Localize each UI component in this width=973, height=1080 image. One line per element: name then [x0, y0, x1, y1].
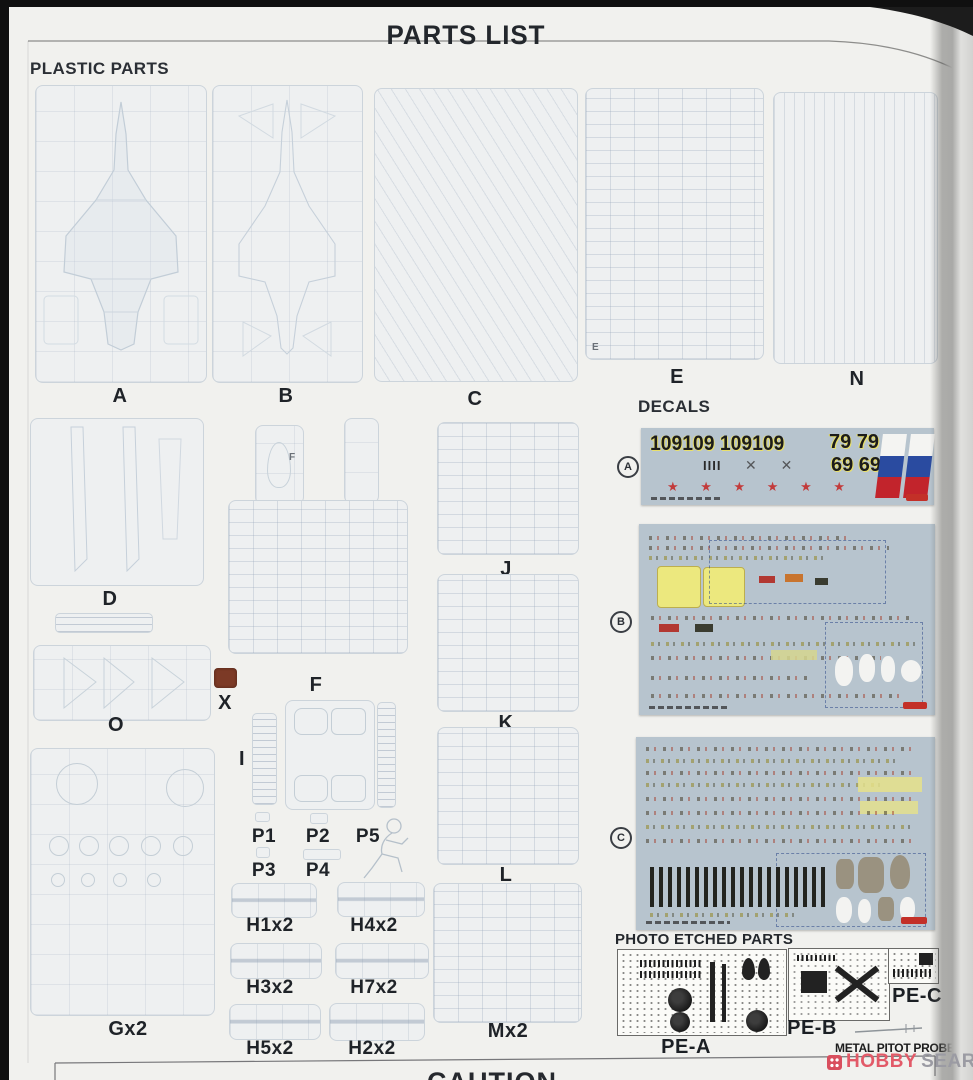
- sprue-k-drawing: [437, 574, 579, 712]
- sprue-l-drawing: [437, 727, 579, 865]
- photo-corner-curl: [0, 0, 973, 90]
- russian-flag-decal: [903, 434, 935, 498]
- sprue-h5-label: H5x2: [246, 1038, 293, 1060]
- decal-sheet-b-marker: B: [610, 611, 632, 633]
- watermark-hobby: HOBBY: [846, 1051, 917, 1073]
- tan-decal: [878, 897, 894, 921]
- sprue-d2-drawing: [55, 613, 153, 633]
- white-decal: [835, 656, 853, 686]
- pe-intake-part: [742, 958, 755, 980]
- stencil-row: [651, 616, 911, 620]
- part-p1-thumb: [255, 812, 270, 822]
- part-p3-thumb: [256, 847, 270, 858]
- sprue-g-drawing: [30, 748, 215, 1016]
- decal-sheet-c: [636, 737, 935, 930]
- pe-comb-strip: [893, 969, 933, 977]
- decal-sheet-a: 109109 109109 79 79 69 69 IIII ✕ ✕ ★ ★ ★…: [641, 428, 934, 505]
- pe-c-label: PE-C: [892, 985, 942, 1008]
- seat-part: [294, 708, 328, 735]
- stencil-row: [646, 759, 901, 763]
- part-x-vinyl: [214, 668, 237, 688]
- g-disc: [49, 836, 69, 856]
- sprue-c-drawing: [374, 88, 578, 382]
- stencil-row: [646, 811, 896, 815]
- decal-sheet-a-marker: A: [617, 456, 639, 478]
- g-disc: [141, 836, 161, 856]
- sprue-o-drawing: [33, 645, 211, 721]
- sprue-h2-label: H2x2: [348, 1038, 395, 1060]
- stencil-row: [646, 825, 914, 829]
- pe-bracket-part: [919, 953, 933, 965]
- white-decal: [859, 654, 875, 682]
- g-disc: [109, 836, 129, 856]
- sprue-f-inner-mark: F: [289, 452, 295, 463]
- g-disc-small: [81, 873, 95, 887]
- sprue-p2-label: P2: [306, 826, 330, 848]
- sprue-n-drawing: [773, 92, 938, 364]
- decal-maker-logo: [901, 917, 927, 924]
- white-decal: [901, 660, 921, 682]
- pe-c-fret: [888, 948, 939, 984]
- sprue-i-label: I: [239, 748, 245, 771]
- tan-decal: [836, 859, 854, 889]
- sprue-f-drawing: [228, 500, 408, 654]
- sprue-m-drawing: [433, 883, 582, 1023]
- sprue-h7-drawing: [335, 943, 429, 979]
- pe-strip-part: [722, 964, 726, 1022]
- pe-ring: [668, 988, 692, 1012]
- decal-sheet-c-marker: C: [610, 827, 632, 849]
- pe-plate-part: [801, 971, 827, 993]
- sprue-p-strip: [377, 702, 396, 808]
- g-disc-small: [51, 873, 65, 887]
- sprue-h3-drawing: [230, 943, 322, 979]
- sprue-p1-label: P1: [252, 826, 276, 848]
- sprue-p-seats-drawing: [285, 700, 375, 810]
- pe-ring: [746, 1010, 768, 1032]
- sprue-p4-label: P4: [306, 860, 330, 882]
- walkway-stripe-decals: [650, 867, 828, 907]
- stencil-row: [646, 783, 886, 787]
- orange-stencil: [785, 574, 803, 582]
- dark-stencil: [695, 624, 713, 632]
- sprue-h5-drawing: [229, 1004, 321, 1040]
- sprue-d-parts: [31, 419, 203, 585]
- sprue-c-label: C: [468, 388, 483, 411]
- sprue-a-jet-outline: [36, 86, 206, 382]
- pe-a-fret: [617, 949, 787, 1036]
- sprue-i-drawing: [252, 713, 277, 805]
- decal-cross-marks: ✕ ✕: [745, 457, 802, 474]
- seat-part: [331, 775, 366, 802]
- sprue-p5-label: P5: [356, 826, 380, 848]
- russian-flag-decal: [875, 434, 907, 498]
- photo-edge-left: [0, 0, 9, 1080]
- pe-strip-part: [710, 962, 715, 1022]
- seat-part: [294, 775, 328, 802]
- g-disc-small: [113, 873, 127, 887]
- sprue-h3-label: H3x2: [246, 977, 293, 999]
- g-disc: [79, 836, 99, 856]
- scanned-instruction-page: PARTS LIST PLASTIC PARTS A B C E E N: [0, 0, 973, 1080]
- decal-numbers-large: 109109 109109: [650, 432, 784, 456]
- part-p2-thumb: [310, 813, 328, 824]
- g-disc-small: [147, 873, 161, 887]
- sprue-f-stub2: [344, 418, 379, 504]
- pe-comb-strip: [640, 960, 702, 967]
- sprue-p3-label: P3: [252, 860, 276, 882]
- stencil-row: [651, 694, 901, 698]
- stencil-row: [646, 771, 916, 775]
- tan-decal: [890, 855, 910, 889]
- hobby-search-watermark: HOBBY SEARCH: [827, 1051, 973, 1073]
- decal-sheet-b-marker-letter: B: [617, 616, 625, 628]
- decal-footer-text: [651, 497, 723, 500]
- stencil-group-outline: [709, 540, 886, 604]
- sprue-a-drawing: [35, 85, 207, 383]
- sprue-h4-label: H4x2: [350, 915, 397, 937]
- stencil-row: [646, 747, 916, 751]
- photo-etched-heading: PHOTO ETCHED PARTS: [615, 931, 793, 948]
- white-decal: [881, 656, 895, 682]
- caution-heading: CAUTION: [427, 1067, 557, 1080]
- sprue-e-inner-mark: E: [592, 342, 599, 353]
- tan-decal: [858, 857, 884, 893]
- stencil-row: [651, 676, 811, 680]
- yellow-stencil-grid: [858, 777, 922, 792]
- paper-page: PARTS LIST PLASTIC PARTS A B C E E N: [9, 6, 973, 1080]
- red-stencil: [659, 624, 679, 632]
- dark-stencil: [815, 578, 828, 585]
- decal-sheet-a-marker-letter: A: [624, 461, 632, 473]
- sprue-g-label: Gx2: [108, 1018, 147, 1041]
- sprue-n-label: N: [850, 368, 865, 391]
- g-wheel: [166, 769, 204, 807]
- decal-footer-text: [649, 706, 729, 709]
- part-x-label: X: [218, 692, 232, 715]
- yellow-canopy-decal: [657, 566, 701, 608]
- decal-sheet-b: [639, 524, 935, 715]
- decal-maker-logo: [906, 494, 928, 501]
- sprue-a-label: A: [113, 385, 128, 408]
- g-disc: [173, 836, 193, 856]
- decals-heading: DECALS: [638, 397, 710, 417]
- sprue-d-drawing: [30, 418, 204, 586]
- pe-ring: [670, 1012, 690, 1032]
- sprue-h7-label: H7x2: [350, 977, 397, 999]
- decal-sheet-c-marker-letter: C: [617, 832, 625, 844]
- sprue-j-drawing: [437, 422, 579, 555]
- sprue-m-label: Mx2: [488, 1020, 528, 1043]
- g-wheel: [56, 763, 98, 805]
- pe-intake-part: [758, 958, 770, 980]
- decal-maker-logo: [903, 702, 927, 709]
- sprue-h2-drawing: [329, 1003, 425, 1041]
- pe-comb-strip: [640, 971, 702, 978]
- yellow-stencil: [771, 650, 817, 660]
- sprue-e-label: E: [670, 366, 684, 389]
- decal-numbers-79: 79 79: [829, 431, 879, 454]
- sprue-f-label: F: [310, 674, 323, 697]
- part-p4-thumb: [303, 849, 341, 860]
- seat-part: [331, 708, 366, 735]
- decal-numbers-69: 69 69: [831, 454, 881, 477]
- decal-stars: ★ ★ ★ ★ ★ ★: [667, 479, 854, 495]
- pe-a-label: PE-A: [661, 1036, 711, 1059]
- pe-b-label: PE-B: [787, 1017, 837, 1040]
- red-stencil: [759, 576, 775, 583]
- sprue-o-label: O: [108, 714, 124, 737]
- white-decal: [836, 897, 852, 923]
- sprue-h4-drawing: [337, 882, 425, 917]
- pe-comb-strip: [797, 955, 837, 961]
- sprue-h1-drawing: [231, 883, 317, 918]
- stencil-row: [650, 913, 800, 917]
- sprue-f-teardrop: [267, 442, 291, 488]
- hobby-search-icon: [827, 1055, 842, 1070]
- decal-tally-marks: IIII: [703, 458, 721, 473]
- sprue-b-label: B: [279, 385, 294, 408]
- sprue-o-parts: [34, 646, 210, 720]
- sprue-f-stub1: [255, 425, 304, 505]
- sprue-b-drawing: [212, 85, 363, 383]
- sprue-h1-label: H1x2: [246, 915, 293, 937]
- white-decal: [858, 899, 871, 923]
- sprue-b-jet-outline: [213, 86, 362, 382]
- stencil-row: [646, 839, 914, 843]
- sprue-e-drawing: E: [585, 88, 764, 360]
- decal-footer-text: [646, 921, 730, 924]
- pe-b-fret: [788, 948, 890, 1021]
- watermark-search: SEARCH: [921, 1051, 973, 1073]
- sprue-d-label: D: [103, 588, 118, 611]
